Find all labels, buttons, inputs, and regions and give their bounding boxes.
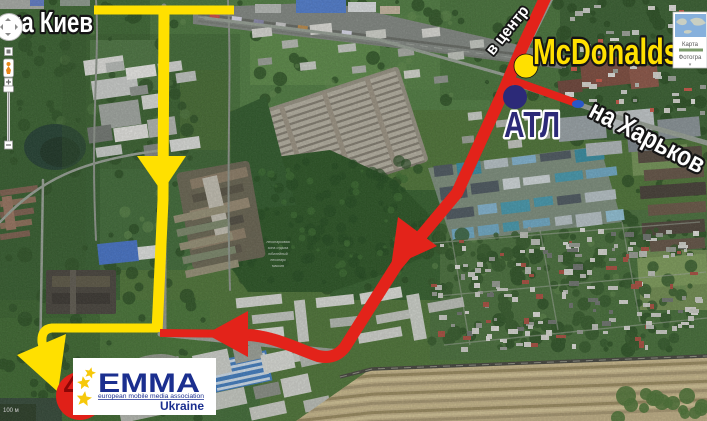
svg-text:АТЛ: АТЛ [504,104,560,145]
svg-text:Ukraine: Ukraine [160,399,204,413]
svg-text:Карта: Карта [682,42,699,48]
svg-text:Фотогра: Фотогра [679,55,702,61]
svg-text:McDonalds: McDonalds [533,31,679,72]
